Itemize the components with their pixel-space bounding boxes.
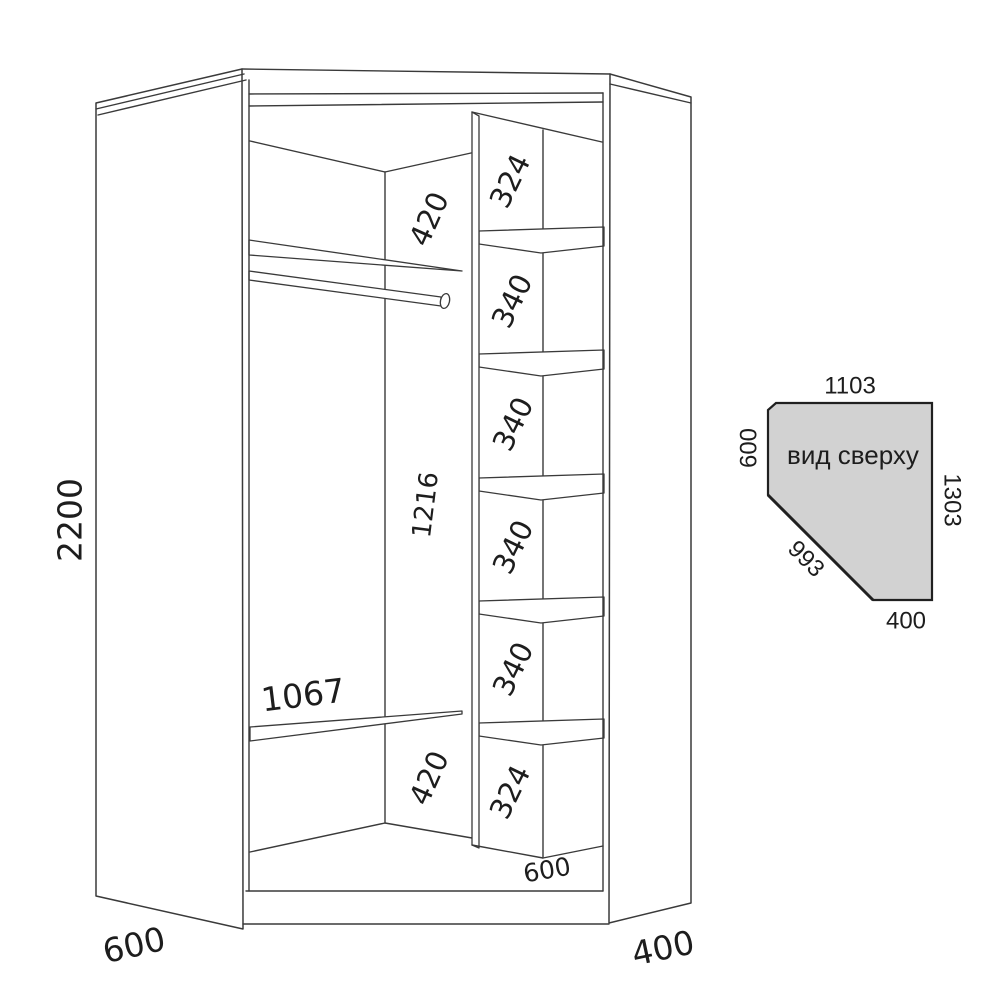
dim-cell-3: 340	[486, 515, 541, 580]
shelf	[479, 350, 604, 376]
wardrobe-technical-diagram: 2200 420 1216 1067 420 324 340 340 340 3…	[0, 0, 1000, 1000]
dim-cell-top: 324	[483, 149, 538, 214]
dim-shelf-length: 1067	[259, 671, 347, 720]
dim-cell-1: 340	[485, 269, 540, 334]
tv-dim-right-depth: 1303	[939, 473, 966, 526]
dim-top-gap: 420	[402, 187, 456, 251]
dim-right-depth: 400	[628, 922, 698, 973]
top-view-title: вид сверху	[787, 440, 919, 470]
shelf	[479, 227, 604, 253]
right-side-panel	[603, 74, 691, 923]
left-side-panel	[96, 69, 249, 929]
base-panel	[243, 891, 609, 924]
tv-dim-left-depth: 600	[736, 428, 763, 468]
diagram-canvas: 2200 420 1216 1067 420 324 340 340 340 3…	[0, 0, 1000, 1000]
dim-hang-height: 1216	[407, 470, 445, 539]
rod-end-cap	[439, 293, 451, 310]
tv-dim-bottom-width: 400	[886, 608, 926, 635]
shelf	[479, 474, 604, 500]
top-view: вид сверху 1103 600 1303 993 400	[736, 373, 966, 635]
hanging-rod	[249, 271, 441, 306]
shelf	[479, 719, 604, 745]
dim-cell-bottom: 324	[483, 760, 538, 825]
shelf	[479, 597, 604, 623]
divider-front-edge	[472, 112, 479, 848]
tv-dim-top-width: 1103	[824, 373, 876, 400]
dim-column-depth: 600	[521, 852, 573, 889]
dim-bottom-gap: 420	[402, 746, 456, 810]
dim-cell-4: 340	[486, 637, 541, 702]
top-view-outline	[768, 403, 932, 600]
top-panel	[242, 69, 610, 106]
dim-cell-2: 340	[486, 392, 541, 457]
dim-left-depth: 600	[99, 919, 169, 971]
dim-overall-height: 2200	[51, 478, 90, 562]
